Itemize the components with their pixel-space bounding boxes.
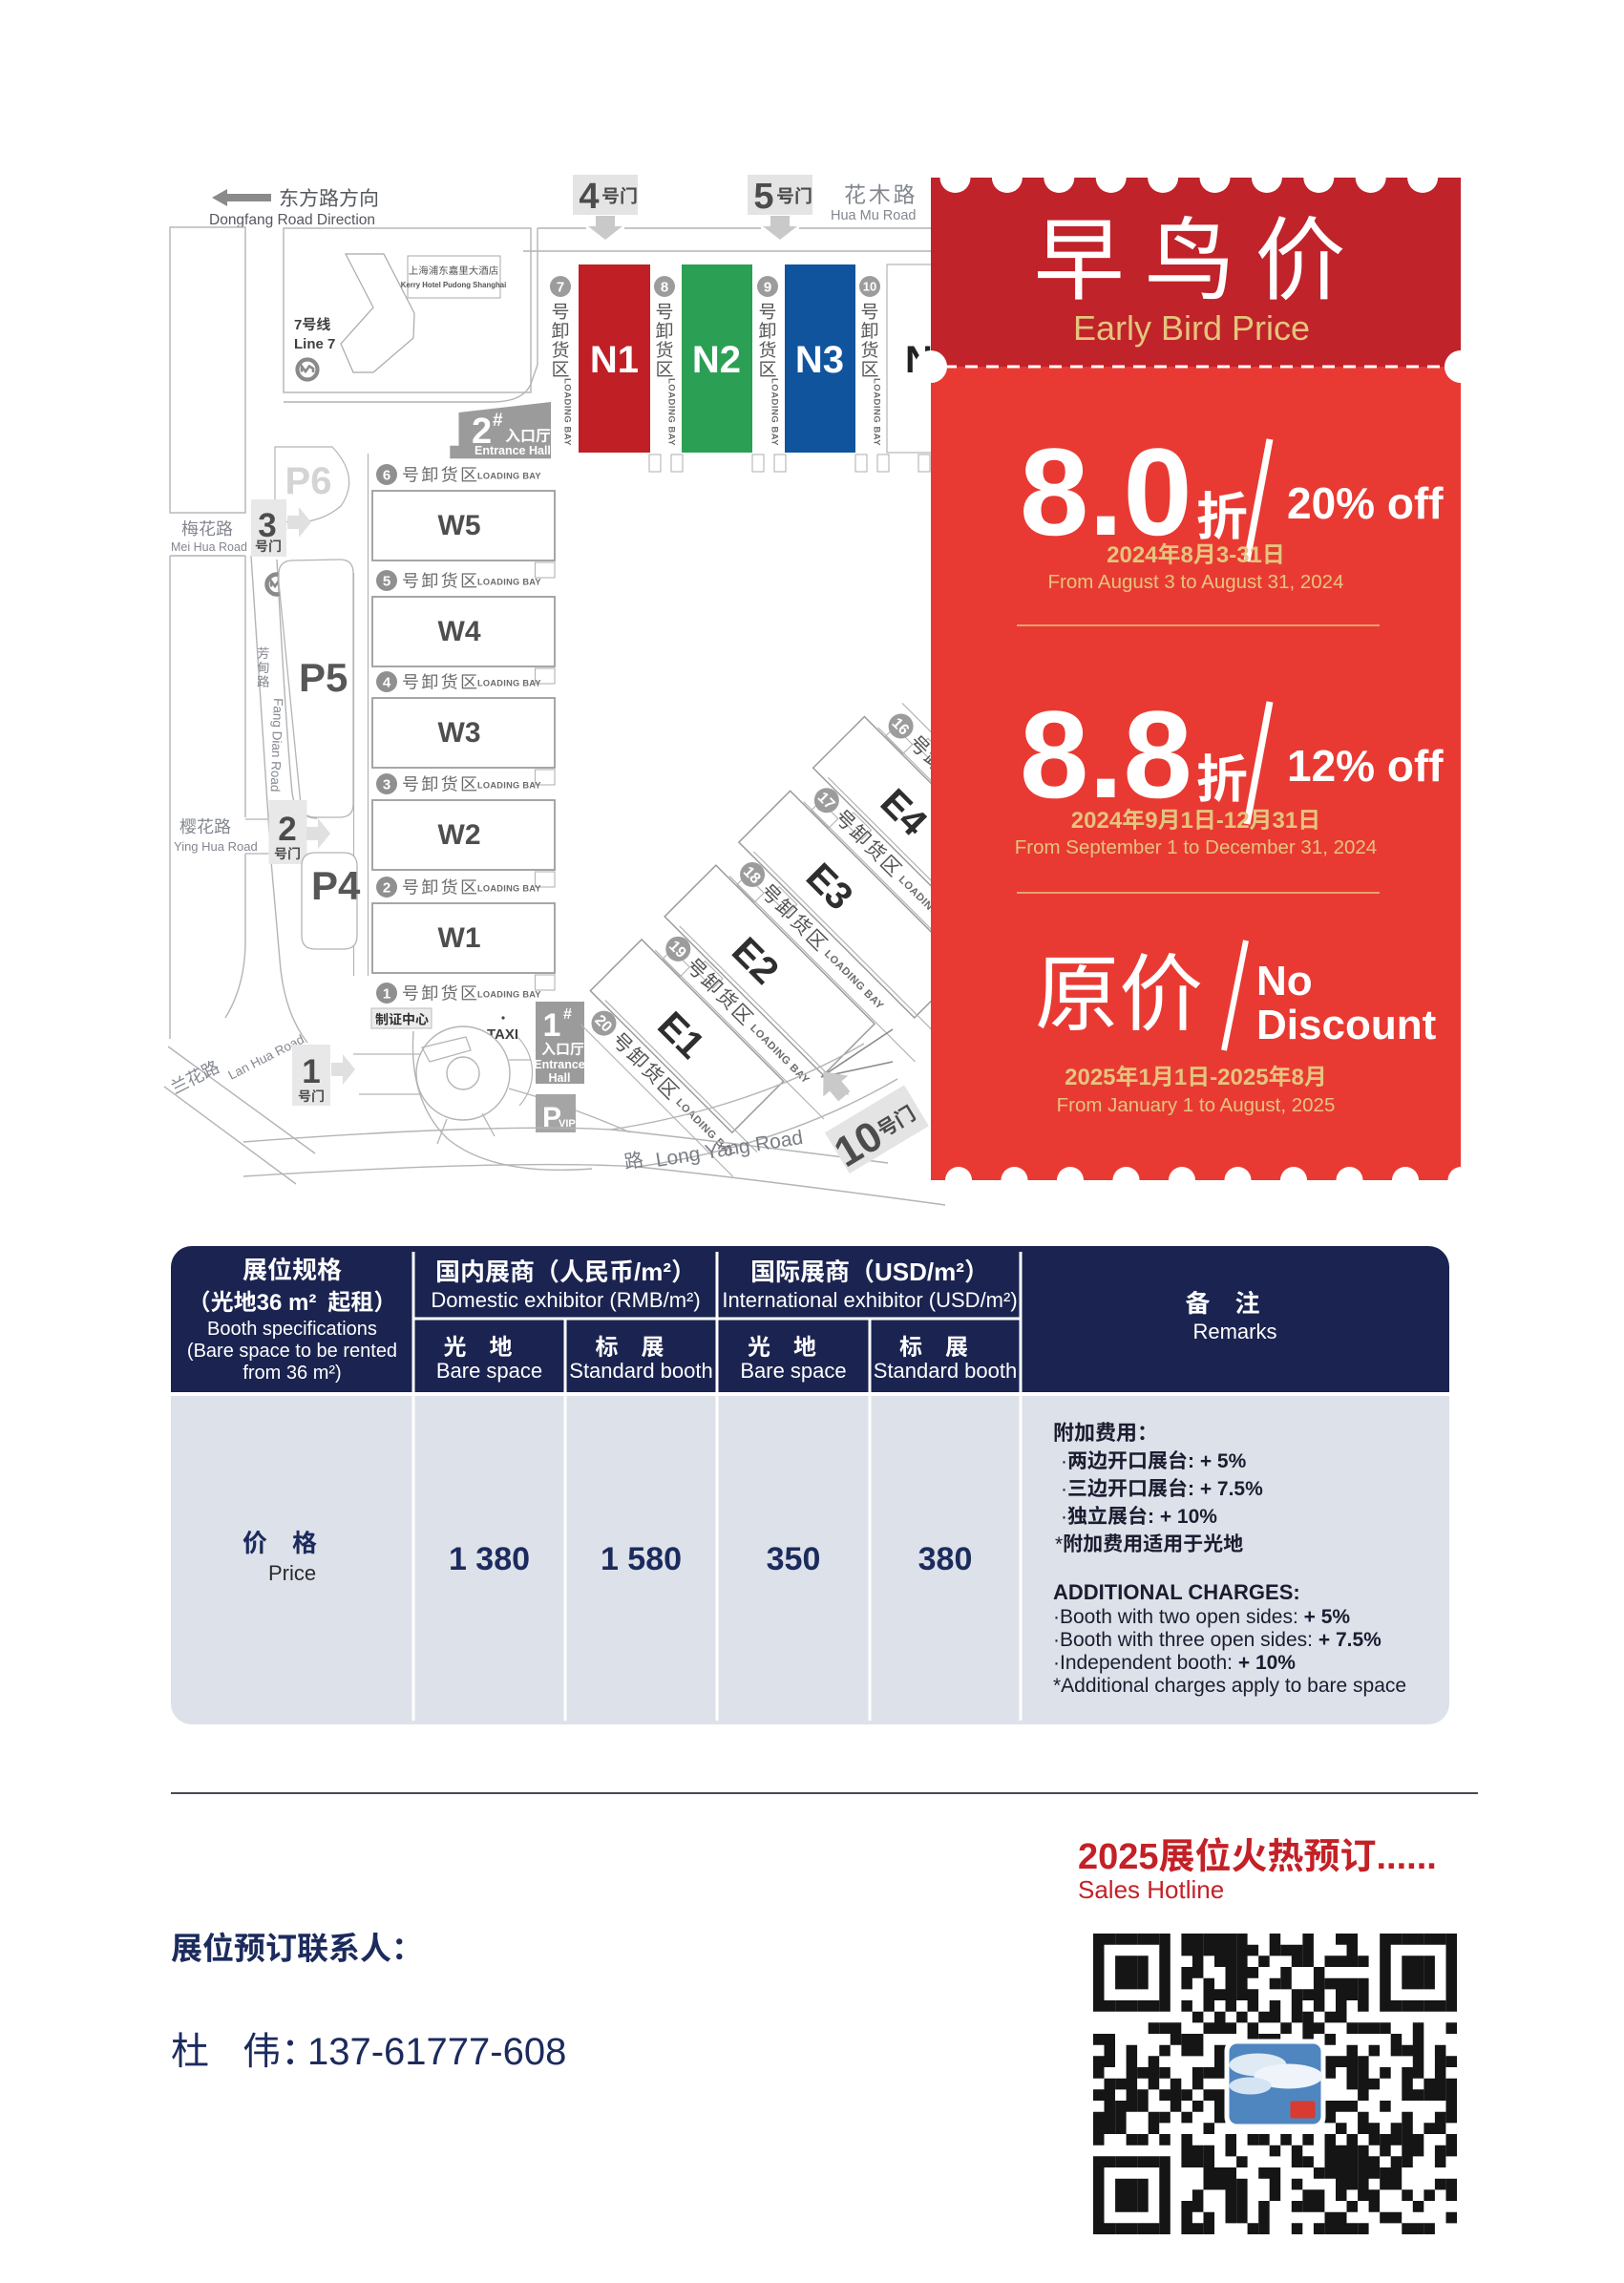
svg-text:Booth specifications: Booth specifications	[207, 1319, 377, 1340]
svg-text:No: No	[1256, 958, 1313, 1004]
svg-text:²: ²	[956, 1258, 964, 1286]
svg-text:·Booth with three open sides:: ·Booth with three open sides: + 7.5%	[1053, 1629, 1381, 1651]
svg-text:N1: N1	[590, 339, 639, 381]
svg-text:*Additional charges apply to b: *Additional charges apply to bare space	[1053, 1675, 1406, 1697]
svg-text:8: 8	[1181, 542, 1193, 568]
svg-text:P6: P6	[285, 460, 332, 502]
svg-text:W4: W4	[438, 616, 481, 647]
svg-text:²: ²	[663, 1258, 671, 1286]
svg-text:·: ·	[1061, 1506, 1067, 1528]
svg-text:International exhibitor (USD/m: International exhibitor (USD/m²)	[722, 1288, 1017, 1312]
svg-text:From August 3 to August 31, 20: From August 3 to August 31, 2024	[1048, 571, 1344, 593]
svg-text::: :	[1188, 1450, 1194, 1472]
svg-text:LOADING BAY: LOADING BAY	[666, 378, 677, 446]
svg-text:USD/m: USD/m	[875, 1258, 956, 1286]
svg-text:8.0: 8.0	[1020, 422, 1192, 561]
svg-text:#: #	[493, 411, 503, 431]
svg-text:Ying Hua Road: Ying Hua Road	[174, 839, 258, 854]
svg-text:Entrance: Entrance	[534, 1058, 585, 1071]
svg-text:LOADING BAY: LOADING BAY	[562, 378, 573, 446]
svg-text:·Booth with two open sides: +: ·Booth with two open sides: + 5%	[1053, 1606, 1350, 1628]
svg-text:380: 380	[918, 1541, 973, 1577]
svg-text:5: 5	[383, 573, 390, 589]
svg-text:137-61777-608: 137-61777-608	[307, 2031, 566, 2073]
svg-text:From January 1 to August, 2025: From January 1 to August, 2025	[1057, 1094, 1336, 1116]
svg-text:P4: P4	[311, 863, 361, 908]
svg-text:Standard booth: Standard booth	[569, 1359, 712, 1383]
svg-text:+ 10%: + 10%	[1160, 1506, 1217, 1528]
svg-text:2025: 2025	[1078, 1837, 1159, 1877]
svg-text:+ 5%: + 5%	[1200, 1450, 1247, 1472]
svg-text:1 380: 1 380	[449, 1541, 530, 1577]
svg-text:2: 2	[278, 811, 296, 848]
svg-text:Dongfang Road Direction: Dongfang Road Direction	[209, 212, 375, 228]
svg-text:4: 4	[579, 177, 599, 217]
svg-text:·Independent booth: + 10%: ·Independent booth: + 10%	[1053, 1652, 1296, 1674]
svg-text:²: ²	[308, 1290, 316, 1316]
svg-text:Kerry Hotel Pudong Shanghai: Kerry Hotel Pudong Shanghai	[401, 281, 506, 289]
svg-text:1: 1	[383, 985, 390, 1002]
svg-text:Price: Price	[268, 1561, 316, 1585]
svg-text:1: 1	[302, 1053, 320, 1090]
svg-text:/m: /m	[634, 1258, 663, 1286]
svg-text:Bare space: Bare space	[436, 1359, 542, 1383]
svg-text:·: ·	[1061, 1450, 1067, 1472]
svg-text:*: *	[1055, 1533, 1063, 1555]
svg-text:Remarks: Remarks	[1192, 1320, 1276, 1343]
svg-text:LOADING BAY: LOADING BAY	[477, 884, 541, 894]
svg-text:-12: -12	[1216, 808, 1250, 834]
svg-text:7: 7	[557, 279, 564, 295]
svg-text:LOADING BAY: LOADING BAY	[477, 472, 541, 481]
svg-text:W5: W5	[438, 510, 481, 541]
svg-text:W1: W1	[438, 922, 481, 954]
svg-text:1 580: 1 580	[601, 1541, 682, 1577]
svg-text:W2: W2	[438, 819, 481, 851]
svg-text:·: ·	[1061, 1478, 1067, 1500]
svg-text:Fang Dian Road: Fang Dian Road	[268, 698, 285, 793]
svg-text:N3: N3	[795, 339, 844, 381]
svg-text:P5: P5	[299, 655, 348, 700]
svg-text:Early Bird Price: Early Bird Price	[1073, 308, 1310, 348]
svg-text:8: 8	[661, 279, 668, 295]
svg-text:3-31: 3-31	[1216, 542, 1262, 568]
svg-text:8.8: 8.8	[1020, 685, 1192, 824]
svg-text:2025: 2025	[1065, 1065, 1115, 1090]
svg-text:-2025: -2025	[1210, 1065, 1268, 1090]
svg-text:2: 2	[383, 879, 390, 896]
svg-text:LOADING BAY: LOADING BAY	[477, 679, 541, 688]
svg-text:4: 4	[383, 674, 391, 690]
svg-text:W3: W3	[438, 717, 481, 749]
svg-text:350: 350	[767, 1541, 821, 1577]
svg-text::: :	[1188, 1478, 1194, 1500]
svg-text:31: 31	[1273, 808, 1298, 834]
svg-text:Entrance Hall: Entrance Hall	[475, 444, 551, 457]
svg-text:LOADING BAY: LOADING BAY	[872, 378, 882, 446]
svg-text:Discount: Discount	[1256, 1002, 1437, 1048]
svg-text:3: 3	[383, 776, 390, 793]
svg-text:+ 7.5%: + 7.5%	[1200, 1478, 1263, 1500]
svg-text:Hua Mu Road: Hua Mu Road	[831, 208, 916, 223]
svg-text:6: 6	[383, 467, 390, 483]
svg-text:Bare space: Bare space	[740, 1359, 846, 1383]
svg-text:(Bare space to be rented: (Bare space to be rented	[187, 1341, 397, 1362]
svg-text:8: 8	[1292, 1065, 1304, 1090]
svg-text:N2: N2	[692, 339, 741, 381]
svg-text:1: 1	[543, 1007, 561, 1044]
svg-text::: :	[1148, 1506, 1154, 1528]
svg-text:7: 7	[294, 317, 302, 333]
svg-text:LOADING BAY: LOADING BAY	[477, 781, 541, 791]
svg-text:20% off: 20% off	[1287, 478, 1444, 528]
svg-text:Sales Hotline: Sales Hotline	[1078, 1875, 1224, 1904]
svg-text:......: ......	[1377, 1837, 1437, 1877]
svg-text:1: 1	[1181, 808, 1193, 834]
svg-text:Long Yang Road: Long Yang Road	[654, 1127, 804, 1172]
svg-text:LOADING BAY: LOADING BAY	[770, 378, 780, 446]
svg-text:#: #	[563, 1006, 572, 1023]
svg-text:2024: 2024	[1107, 542, 1158, 568]
svg-text:Line 7: Line 7	[294, 336, 335, 352]
svg-text:9: 9	[1145, 808, 1157, 834]
svg-text:Standard booth: Standard booth	[874, 1359, 1017, 1383]
svg-text:9: 9	[764, 279, 771, 295]
svg-text:1: 1	[1139, 1065, 1151, 1090]
svg-text:1: 1	[1174, 1065, 1187, 1090]
svg-text:From September 1 to December 3: From September 1 to December 31, 2024	[1015, 836, 1377, 858]
svg-text:36 m: 36 m	[257, 1290, 309, 1316]
svg-text:Mei Hua Road: Mei Hua Road	[171, 540, 247, 554]
svg-text:LOADING BAY: LOADING BAY	[477, 990, 541, 1000]
svg-text:3: 3	[258, 507, 276, 544]
svg-text:12% off: 12% off	[1287, 741, 1444, 791]
svg-text:from 36 m²): from 36 m²)	[243, 1363, 341, 1384]
svg-text:Hall: Hall	[549, 1071, 571, 1085]
svg-text:2024: 2024	[1071, 808, 1123, 834]
svg-text:10: 10	[863, 280, 876, 294]
svg-text:5: 5	[753, 177, 773, 217]
svg-text:LOADING BAY: LOADING BAY	[477, 578, 541, 587]
svg-text:ADDITIONAL CHARGES:: ADDITIONAL CHARGES:	[1053, 1580, 1300, 1604]
svg-text:Domestic exhibitor (RMB/m²): Domestic exhibitor (RMB/m²)	[431, 1288, 700, 1312]
